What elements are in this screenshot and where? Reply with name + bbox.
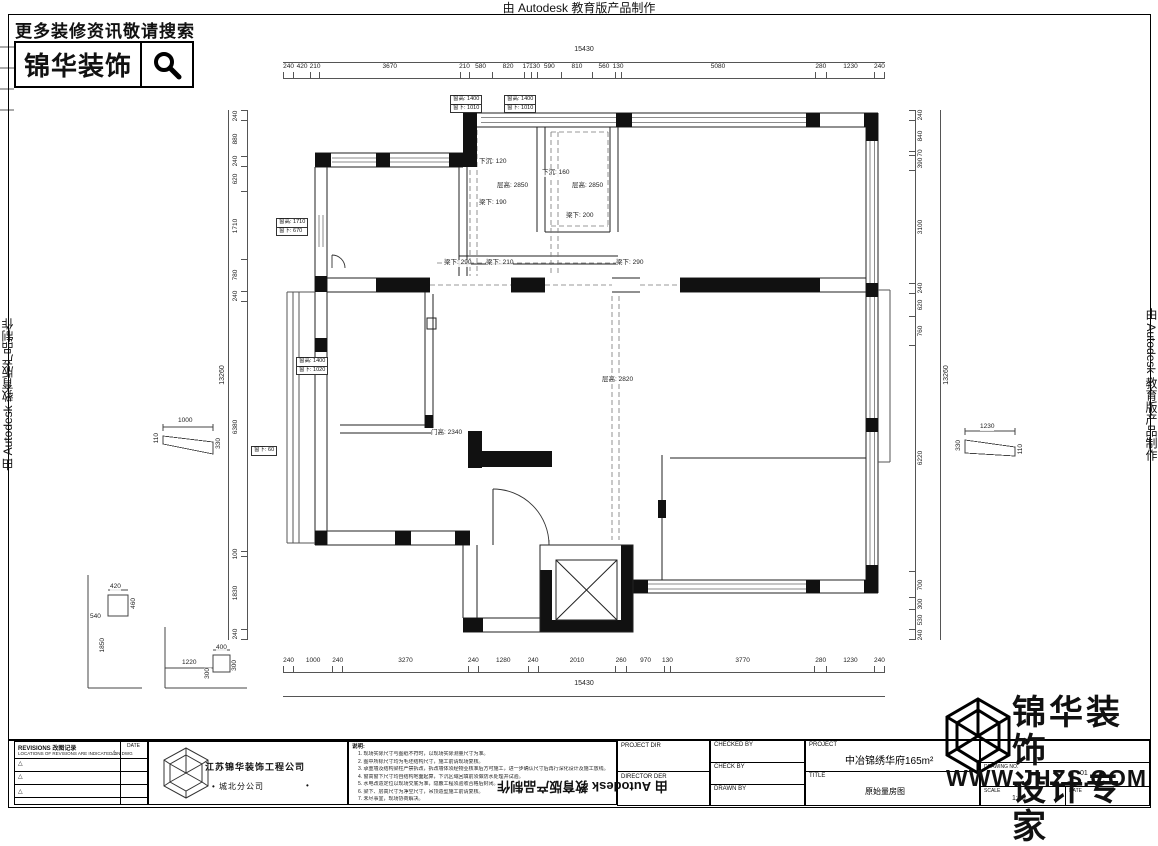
dim-segment: 620 (909, 293, 915, 316)
note-item: 7. 未尽事宜，现场协商解决。 (352, 796, 612, 804)
dim-row-right: 2408407039031002406207606220700300530240 (909, 110, 916, 640)
dim-segment: 5080 (621, 72, 815, 78)
revisions-row-rule (14, 797, 148, 798)
dim-segment: 1830 (241, 556, 247, 628)
dim-segment: 3270 (342, 666, 467, 672)
search-hint-text: 更多装修资讯敬请搜索 (15, 17, 195, 42)
dim-segment: 840 (909, 120, 915, 151)
dim-segment: 780 (241, 259, 247, 290)
aux-dim: 300 (232, 660, 239, 671)
title-label: TITLE (809, 773, 825, 779)
company-branch-dot: • (306, 781, 309, 790)
dim-segment: 3670 (319, 72, 459, 78)
dim-segment: 2010 (538, 666, 615, 672)
notes-header: 说明: (352, 742, 612, 750)
dim-row-left: 240880240620171078024063801001830240 (241, 110, 248, 640)
plan-label: 梁下: 190 (479, 200, 506, 207)
aux-dim: 1230 (980, 424, 994, 431)
dim-segment: 530 (909, 609, 915, 629)
dim-segment: 170 (524, 72, 531, 78)
dim-segment: 700 (909, 571, 915, 597)
dim-segment: 1710 (241, 191, 247, 259)
watermark-cube-logo (942, 696, 1014, 776)
check-cell (710, 740, 805, 806)
grid-rule (710, 784, 805, 785)
check-by-label: CHECK BY (714, 764, 745, 770)
plan-label: 层高: 2850 (497, 183, 528, 190)
autodesk-note-bottom: 由 Autodesk 教育版产品制作 (495, 778, 670, 797)
dim-row-top: 2404202103670210580820170130590810560130… (283, 72, 885, 79)
dim-segment: 240 (528, 666, 538, 672)
title-value: 原始量房图 (865, 786, 905, 797)
dim-total-right: 13260 (940, 110, 941, 640)
cad-sheet: { "autodesk_note": "由 Autodesk 教育版产品制作",… (0, 0, 1158, 809)
dim-segment: 1280 (478, 666, 528, 672)
dim-segment: 620 (241, 166, 247, 191)
dim-segment: 390 (909, 155, 915, 170)
window-tag: 窗高: 1400窗下: 1020 (296, 357, 328, 375)
aux-dim: 110 (1018, 444, 1025, 454)
dim-segment: 240 (332, 666, 342, 672)
aux-dim: 400 (216, 645, 227, 652)
dim-segment: 240 (468, 666, 478, 672)
grid-rule (617, 771, 710, 772)
autodesk-note-top: 由 Autodesk 教育版产品制作 (0, 0, 1158, 16)
aux-dim: 420 (110, 584, 121, 591)
revision-triangle-icon: △ (18, 760, 23, 767)
project-dir-label: PROJECT DIR (621, 743, 661, 749)
revisions-row-rule (14, 758, 148, 759)
dim-segment: 580 (469, 72, 492, 78)
window-tag: 窗高: 1400窗下: 1010 (504, 95, 536, 113)
dim-segment: 240 (241, 629, 247, 639)
dim-segment: 6380 (241, 301, 247, 551)
dim-segment: 1230 (826, 666, 874, 672)
aux-dim: 1850 (100, 638, 107, 652)
company-branch: • 城北分公司 (212, 781, 264, 792)
dim-total-left: 13260 (228, 110, 229, 640)
plan-label: 梁下: 290 (616, 260, 643, 267)
plan-label: 下沉: 120 (479, 159, 506, 166)
drawn-by-label: DRAWN BY (714, 786, 746, 792)
note-item: 2. 图中所标尺寸均为毛坯结构尺寸，施工前请现场复核。 (352, 759, 612, 767)
checked-by-label: CHECKED BY (714, 742, 753, 748)
dim-segment: 210 (460, 72, 469, 78)
aux-dim: 1220 (182, 660, 196, 667)
dim-row-bottom: 2401000240327024012802402010260970130377… (283, 666, 885, 673)
dim-segment: 420 (293, 72, 310, 78)
aux-dim: 300 (205, 668, 212, 679)
dim-segment: 280 (815, 72, 827, 78)
aux-dim: 540 (90, 614, 101, 621)
dim-segment: 240 (909, 283, 915, 293)
dim-segment: 240 (241, 291, 247, 301)
revision-triangle-icon: △ (18, 788, 23, 795)
revisions-row-rule (14, 771, 148, 772)
note-item: 1. 现场实际尺寸与图纸不符时，以现场实际测量尺寸为准。 (352, 751, 612, 759)
dim-segment: 240 (909, 110, 915, 120)
brand-logo-box: 锦华装饰 (14, 41, 194, 88)
plan-label: 层高: 2850 (572, 183, 603, 190)
project-label: PROJECT (809, 742, 837, 748)
watermark-website: WWW.JHZS.COM (946, 765, 1147, 792)
revisions-row-rule (14, 784, 148, 785)
window-tag: 窗高: 1400窗下: 1010 (450, 95, 482, 113)
plan-label: 梁下: 210 (486, 260, 513, 267)
dim-segment: 240 (241, 110, 247, 120)
dim-total-bottom: 15430 (283, 689, 885, 697)
dim-segment: 280 (814, 666, 826, 672)
dim-segment: 560 (592, 72, 614, 78)
dim-total-top: 15430 (283, 55, 885, 63)
dim-segment: 240 (283, 666, 293, 672)
company-name: 江苏锦华装饰工程公司 (205, 760, 305, 773)
dim-segment: 240 (874, 72, 884, 78)
revision-triangle-icon: △ (18, 773, 23, 780)
dim-segment: 820 (492, 72, 524, 78)
aux-dim: 330 (216, 438, 223, 449)
dim-segment: 3100 (909, 170, 915, 283)
revisions-date-label: DATE (127, 743, 140, 749)
dim-segment: 760 (909, 316, 915, 345)
plan-label: 下沉: 160 (542, 170, 569, 177)
dim-segment: 590 (537, 72, 560, 78)
search-icon (152, 50, 182, 80)
window-tag: 窗高: 1710窗下: 670 (276, 218, 308, 236)
search-icon-cell (140, 43, 192, 86)
dim-segment: 300 (909, 597, 915, 609)
revision-triangle-icon: △ (112, 749, 117, 756)
dim-segment: 810 (561, 72, 593, 78)
dim-segment: 260 (615, 666, 626, 672)
autodesk-note-left: 由 Autodesk 教育版产品制作 (0, 318, 16, 471)
dim-segment: 240 (283, 72, 293, 78)
autodesk-note-right: 由 Autodesk 教育版产品制作 (1143, 308, 1158, 461)
aux-dim: 110 (154, 433, 161, 443)
dim-segment: 210 (310, 72, 319, 78)
plan-label: 梁下: 200 (566, 213, 593, 220)
aux-dim: 460 (131, 598, 138, 609)
aux-dim: 1000 (178, 418, 192, 425)
dim-segment: 3770 (670, 666, 814, 672)
dim-segment: 240 (874, 666, 884, 672)
dim-segment: 6220 (909, 345, 915, 571)
plan-label: 层高: 2820 (602, 377, 633, 384)
dim-segment: 1230 (826, 72, 874, 78)
dim-segment: 880 (241, 120, 247, 155)
aux-dim: 330 (956, 440, 963, 451)
plan-label: 门高: 2340 (431, 430, 462, 437)
watermark-brand-line1: 锦华装饰 (1012, 694, 1158, 770)
grid-rule (710, 762, 805, 763)
company-cube-logo (160, 746, 212, 800)
brand-name: 锦华装饰 (16, 43, 140, 86)
project-value: 中冶锦绣华府165m² (845, 752, 933, 767)
plan-label: 梁下: 290 (444, 260, 471, 267)
dim-segment: 240 (909, 629, 915, 639)
dim-segment: 970 (626, 666, 664, 672)
dim-segment: 1000 (293, 666, 332, 672)
note-item: 3. 承重墙及结构梁柱严禁拆改，拆改墙体须经物业核准后方可施工，进一步确认尺寸后… (352, 766, 612, 774)
dim-segment: 240 (241, 156, 247, 166)
window-tag: 窗下: 60 (251, 446, 277, 456)
